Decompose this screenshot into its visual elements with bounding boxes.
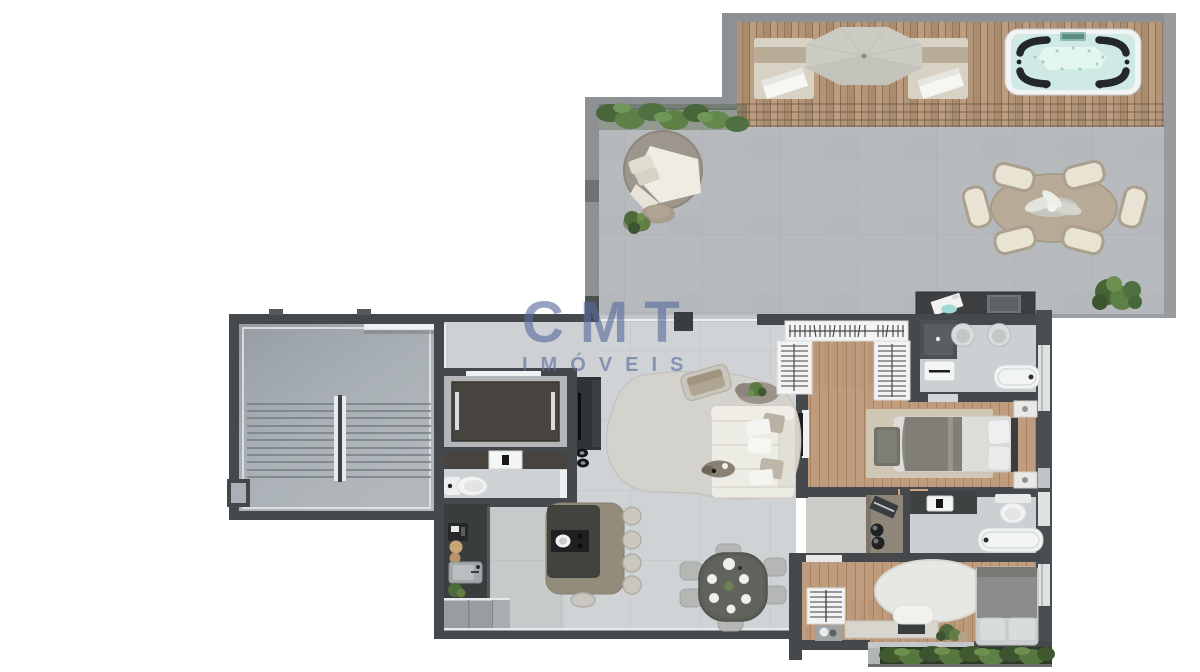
svg-text:CMT: CMT bbox=[522, 290, 696, 355]
svg-text:IMÓVEIS: IMÓVEIS bbox=[522, 352, 696, 376]
